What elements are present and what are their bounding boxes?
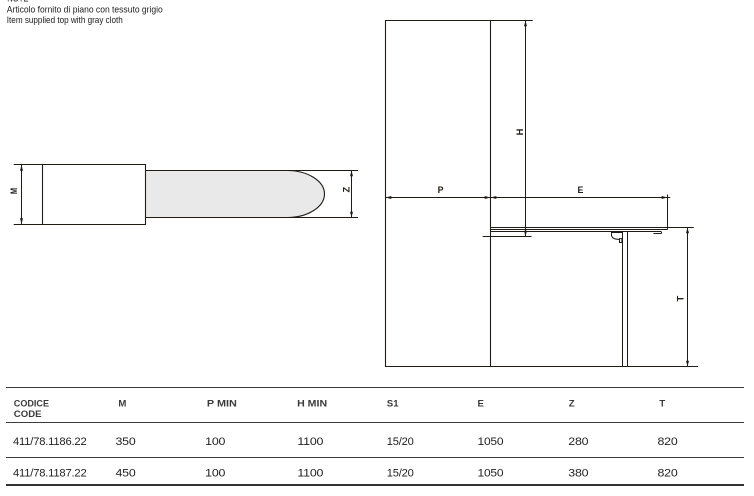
svg-text:CODICE: CODICE xyxy=(14,398,50,409)
svg-text:411/78.1186.22: 411/78.1186.22 xyxy=(13,436,87,448)
svg-text:Item supplied top with gray cl: Item supplied top with gray cloth xyxy=(7,15,123,25)
svg-text:280: 280 xyxy=(568,436,588,448)
svg-text:350: 350 xyxy=(116,436,136,448)
svg-text:820: 820 xyxy=(658,436,678,448)
svg-text:H: H xyxy=(514,128,525,135)
svg-text:NOTE: NOTE xyxy=(7,0,28,4)
svg-text:100: 100 xyxy=(205,436,225,448)
svg-text:15/20: 15/20 xyxy=(387,467,414,479)
svg-text:Articolo fornito di piano con: Articolo fornito di piano con tessuto gr… xyxy=(7,5,163,15)
svg-text:P MIN: P MIN xyxy=(207,398,237,409)
svg-text:15/20: 15/20 xyxy=(387,436,414,448)
svg-text:100: 100 xyxy=(205,467,225,479)
svg-text:M: M xyxy=(8,188,19,194)
svg-text:1100: 1100 xyxy=(297,467,323,479)
svg-text:E: E xyxy=(577,185,583,195)
svg-text:1050: 1050 xyxy=(478,467,504,479)
svg-text:411/78.1187.22: 411/78.1187.22 xyxy=(13,467,87,479)
svg-text:Z: Z xyxy=(341,186,352,192)
svg-text:T: T xyxy=(659,398,665,409)
svg-text:M: M xyxy=(118,398,126,409)
svg-text:E: E xyxy=(478,398,485,409)
svg-text:1100: 1100 xyxy=(297,436,323,448)
svg-text:CODE: CODE xyxy=(14,409,42,420)
svg-text:S1: S1 xyxy=(387,398,399,409)
svg-text:P: P xyxy=(438,185,444,195)
svg-text:820: 820 xyxy=(658,467,678,479)
svg-text:T: T xyxy=(675,296,686,302)
svg-text:Z: Z xyxy=(569,398,575,409)
svg-text:380: 380 xyxy=(568,467,588,479)
svg-text:1050: 1050 xyxy=(478,436,504,448)
svg-text:H MIN: H MIN xyxy=(297,398,327,409)
svg-text:450: 450 xyxy=(116,467,136,479)
